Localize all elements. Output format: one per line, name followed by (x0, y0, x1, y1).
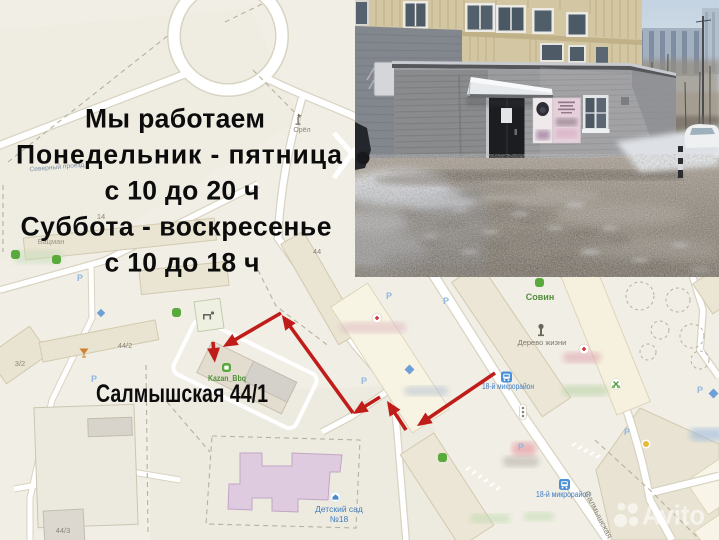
svg-text:P: P (443, 296, 449, 306)
svg-text:P: P (624, 427, 630, 437)
svg-text:P: P (386, 291, 392, 301)
svg-text:44: 44 (313, 247, 321, 256)
svg-text:Понедельник - пятница: Понедельник - пятница (16, 140, 342, 170)
svg-text:18-й микрорайон: 18-й микрорайон (536, 490, 590, 499)
svg-text:№18: №18 (330, 514, 349, 524)
svg-text:Мы работаем: Мы работаем (85, 104, 265, 134)
svg-text:P: P (361, 376, 367, 386)
svg-text:Орёл: Орёл (293, 127, 310, 134)
svg-text:Суббота - воскресенье: Суббота - воскресенье (21, 212, 332, 242)
svg-text:Дерево жизни: Дерево жизни (518, 338, 567, 347)
svg-text:P: P (518, 442, 524, 452)
svg-text:Детский сад: Детский сад (315, 504, 363, 514)
svg-text:с 10 до 18 ч: с 10 до 18 ч (105, 248, 260, 278)
svg-text:P: P (697, 385, 703, 395)
svg-text:Avito: Avito (642, 500, 705, 531)
svg-text:44/3: 44/3 (56, 526, 71, 535)
svg-text:Салмышская 44/1: Салмышская 44/1 (96, 380, 268, 408)
svg-text:44/2: 44/2 (118, 341, 133, 350)
svg-text:3/2: 3/2 (15, 359, 25, 368)
svg-text:с 10 до 20 ч: с 10 до 20 ч (105, 176, 260, 206)
svg-text:Совин: Совин (526, 292, 555, 302)
svg-text:P: P (77, 273, 83, 283)
svg-text:18-й микрорайон: 18-й микрорайон (482, 382, 534, 391)
